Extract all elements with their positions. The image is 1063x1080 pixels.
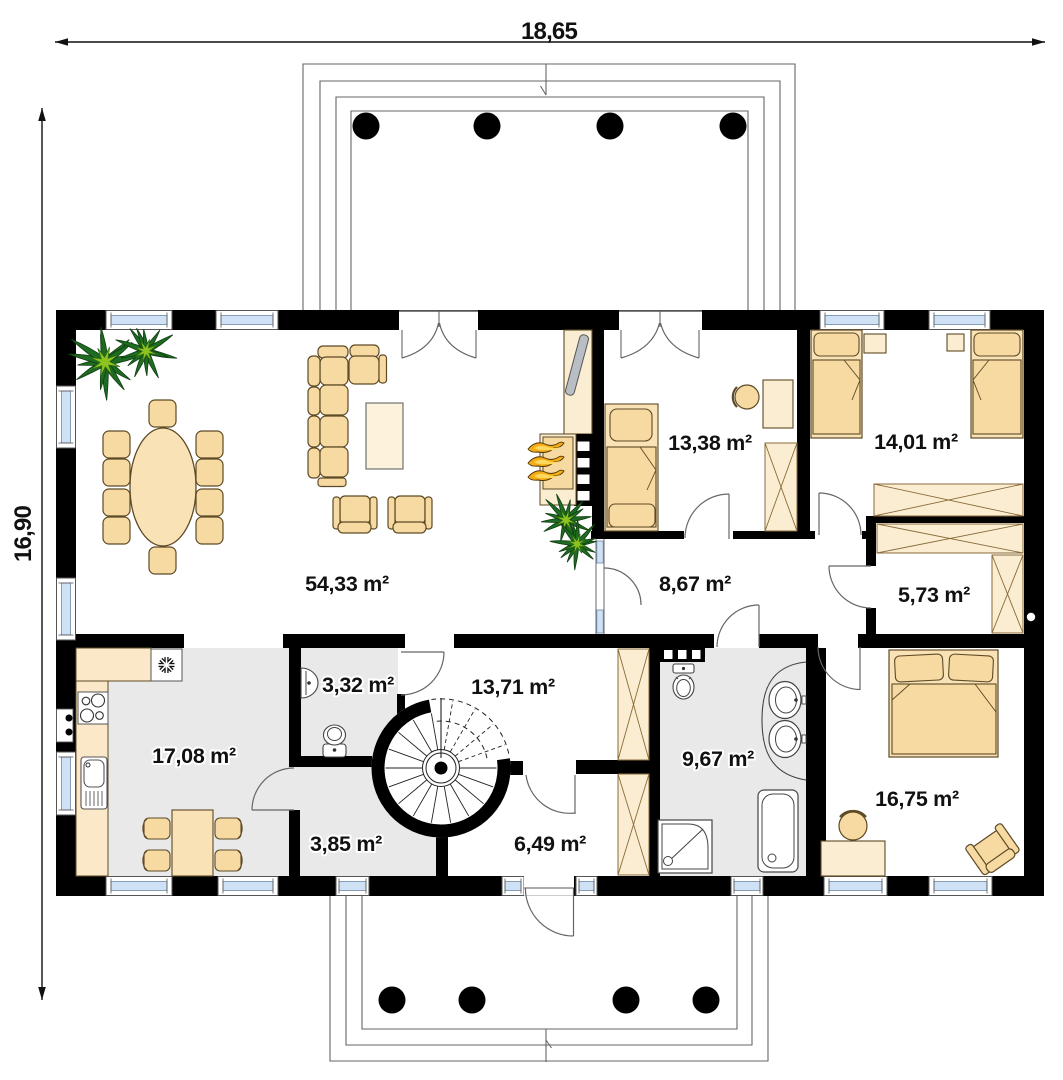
svg-text:6,49 m²: 6,49 m² [514, 832, 586, 856]
svg-text:13,71 m²: 13,71 m² [471, 675, 555, 699]
svg-text:54,33 m²: 54,33 m² [305, 572, 389, 596]
svg-text:14,01 m²: 14,01 m² [874, 430, 958, 454]
svg-text:8,67 m²: 8,67 m² [659, 572, 731, 596]
svg-text:16,75 m²: 16,75 m² [875, 787, 959, 811]
svg-text:18,65: 18,65 [521, 18, 578, 45]
svg-text:9,67 m²: 9,67 m² [682, 747, 754, 771]
svg-text:3,85 m²: 3,85 m² [310, 832, 382, 856]
svg-text:3,32 m²: 3,32 m² [322, 673, 394, 697]
svg-text:13,38 m²: 13,38 m² [668, 431, 752, 455]
svg-text:16,90: 16,90 [10, 506, 37, 563]
svg-text:5,73 m²: 5,73 m² [898, 583, 970, 607]
svg-text:17,08 m²: 17,08 m² [152, 744, 236, 768]
